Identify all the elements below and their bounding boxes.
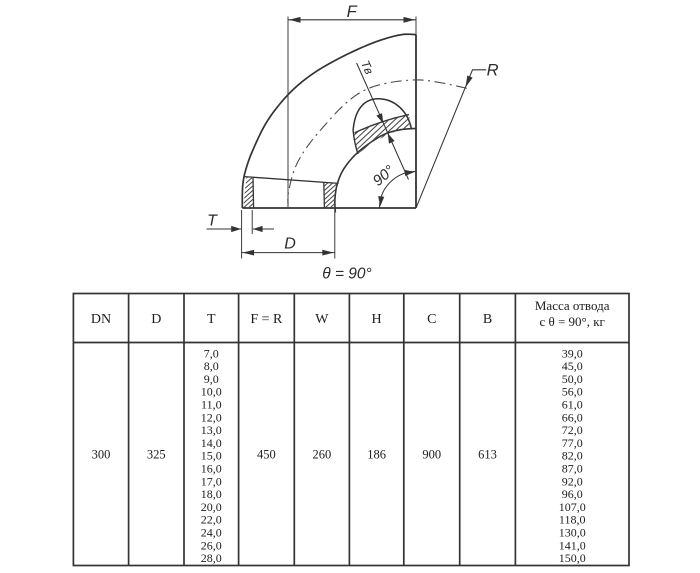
svg-text:с θ = 90°, кг: с θ = 90°, кг <box>539 314 604 329</box>
svg-text:900: 900 <box>422 448 441 462</box>
svg-text:B: B <box>483 312 492 327</box>
svg-text:D: D <box>151 312 161 327</box>
svg-text:613: 613 <box>478 448 497 462</box>
svg-text:90°: 90° <box>370 162 398 190</box>
svg-text:300: 300 <box>92 448 111 462</box>
svg-text:450: 450 <box>257 448 276 462</box>
svg-text:C: C <box>427 312 436 327</box>
svg-text:Масса отвода: Масса отвода <box>535 298 610 313</box>
svg-text:Tв: Tв <box>358 58 376 76</box>
svg-text:325: 325 <box>147 448 166 462</box>
svg-text:R: R <box>487 61 499 79</box>
svg-text:F: F <box>347 3 358 21</box>
svg-text:150,0: 150,0 <box>559 551 586 565</box>
svg-text:H: H <box>372 312 382 327</box>
svg-text:260: 260 <box>313 448 332 462</box>
svg-text:DN: DN <box>91 312 111 327</box>
svg-text:T: T <box>207 213 218 230</box>
svg-text:T: T <box>207 312 216 327</box>
svg-text:F = R: F = R <box>250 312 283 327</box>
svg-text:W: W <box>315 312 329 327</box>
svg-text:28,0: 28,0 <box>201 551 222 565</box>
svg-text:D: D <box>284 236 296 253</box>
svg-text:θ = 90°: θ = 90° <box>322 266 372 283</box>
svg-text:186: 186 <box>367 448 386 462</box>
